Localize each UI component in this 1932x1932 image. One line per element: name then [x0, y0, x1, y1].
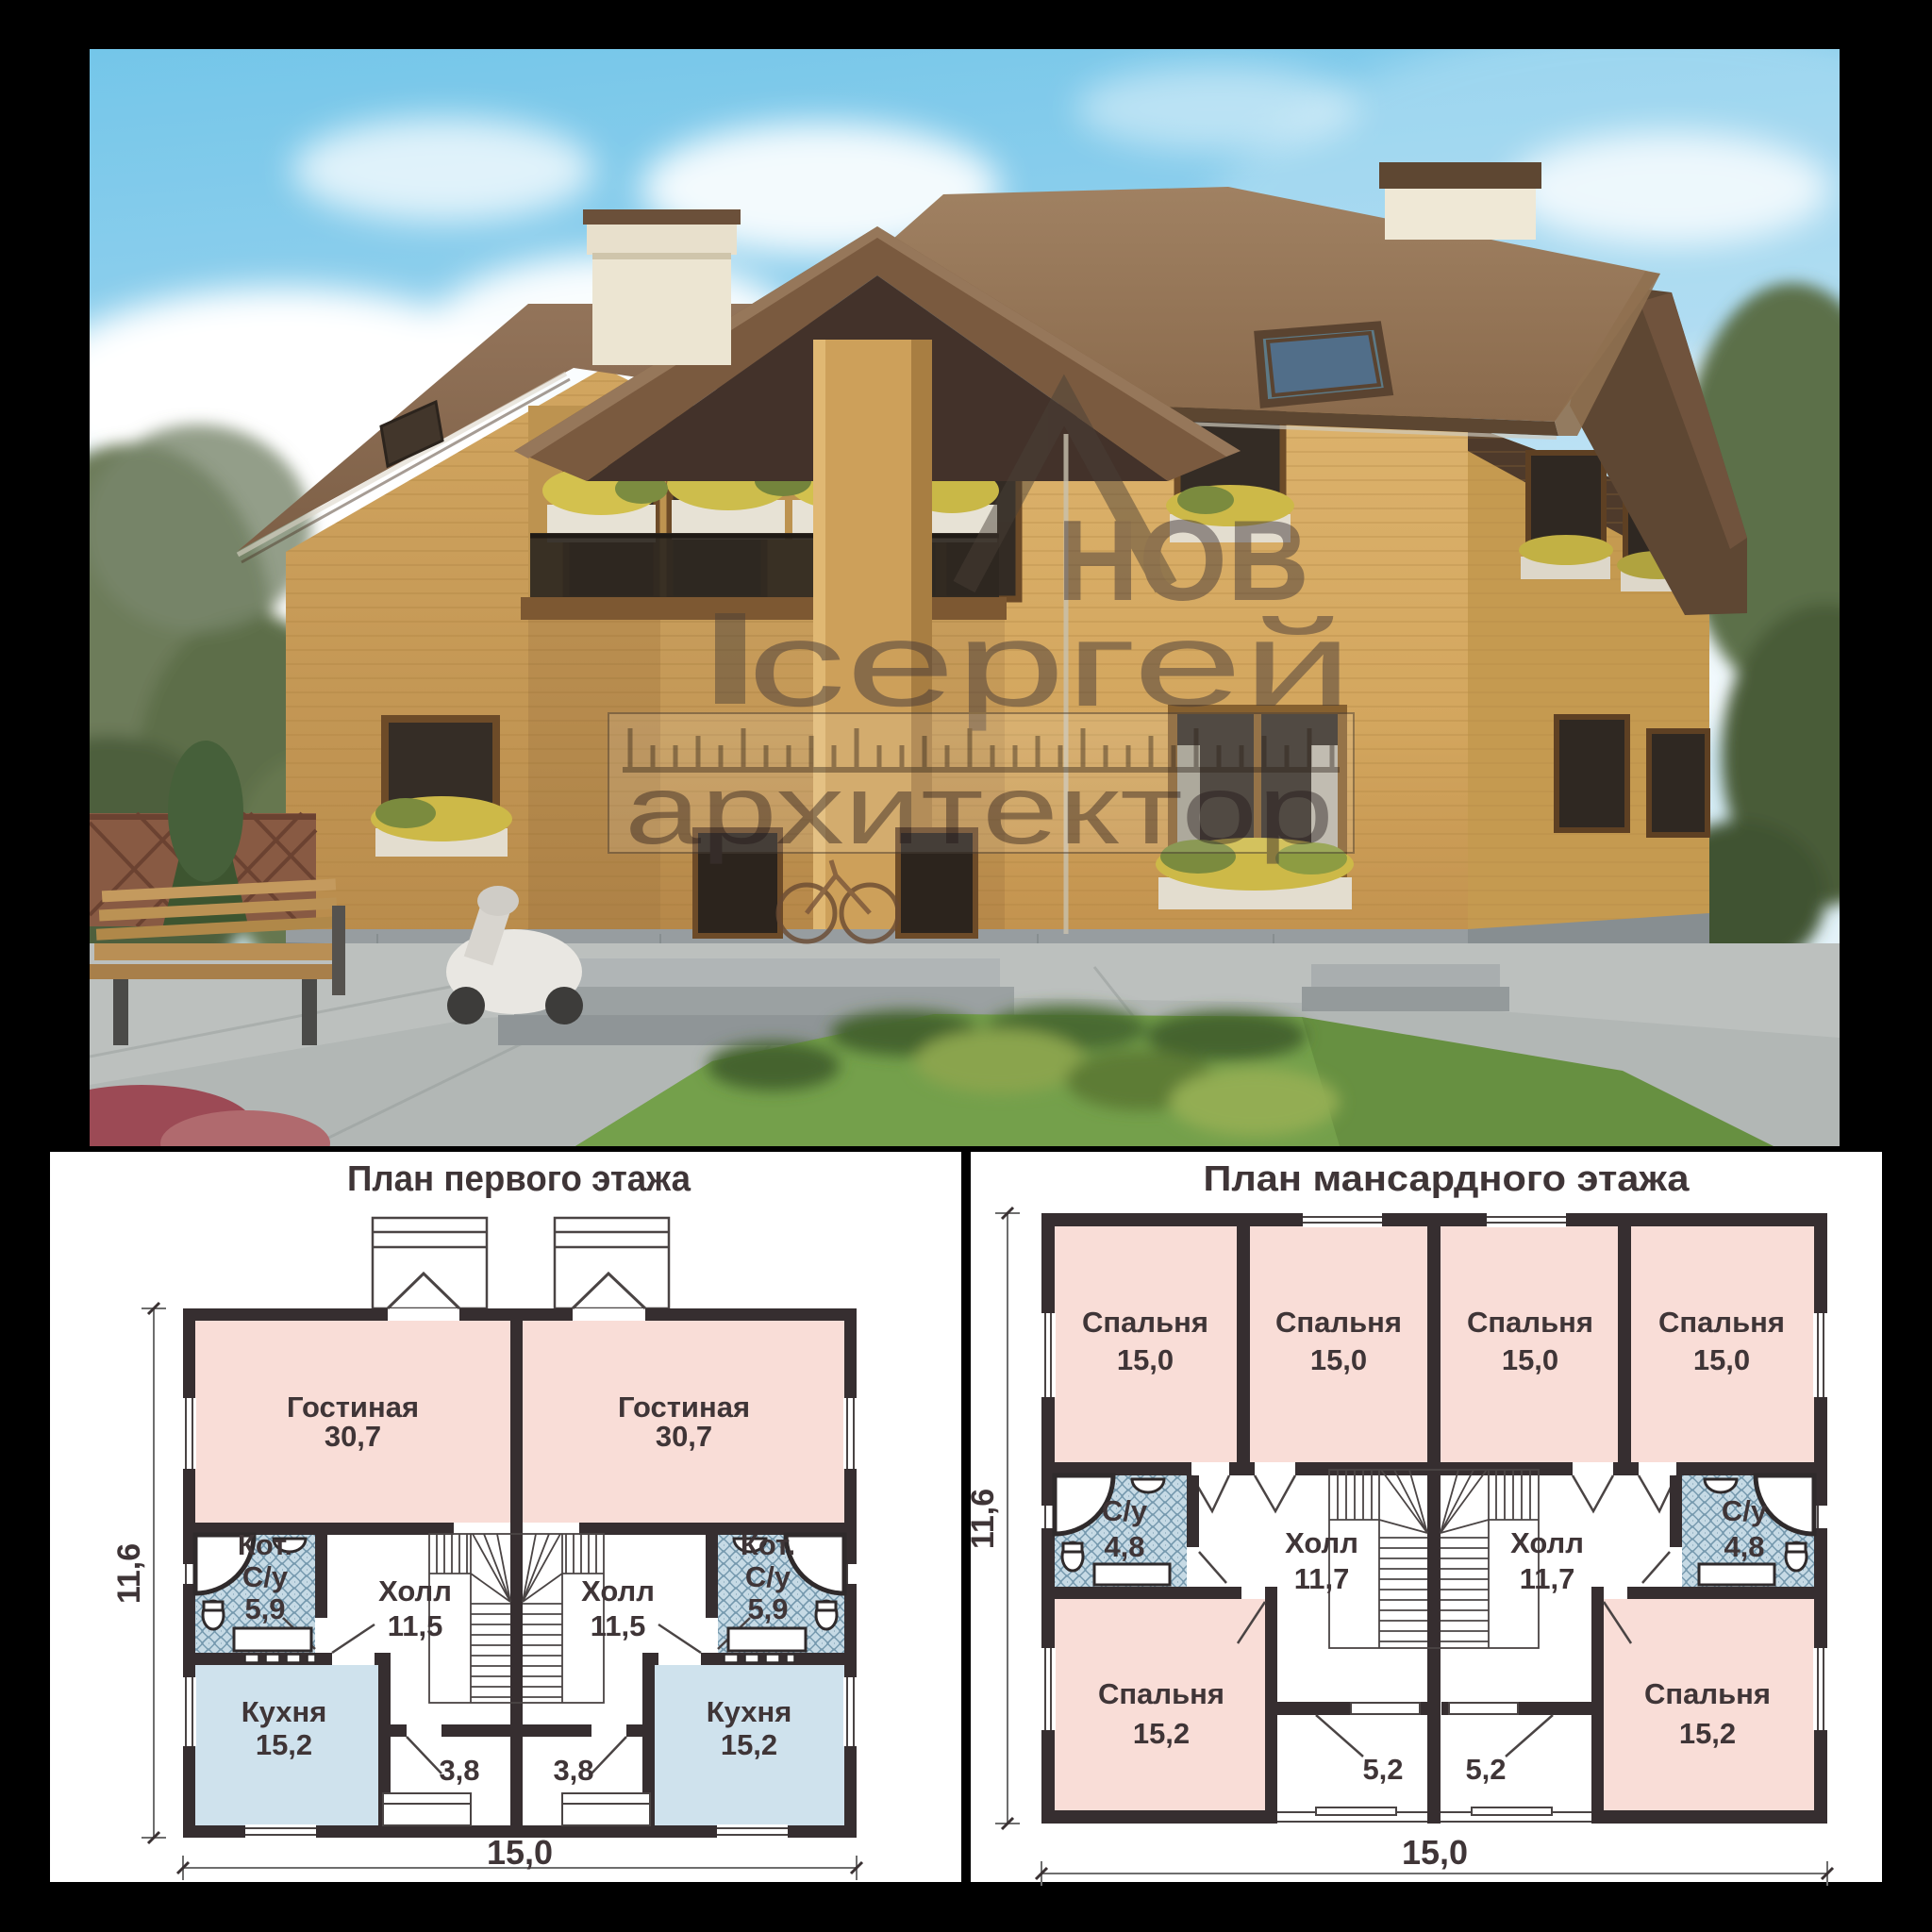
svg-text:15,0: 15,0: [1402, 1833, 1468, 1872]
svg-text:Спальня: Спальня: [1275, 1306, 1402, 1339]
svg-text:Холл: Холл: [1285, 1526, 1358, 1559]
svg-text:15,0: 15,0: [1117, 1343, 1174, 1376]
svg-text:15,0: 15,0: [1310, 1343, 1367, 1376]
svg-text:С/у: С/у: [1102, 1494, 1148, 1527]
svg-text:Гостиная: Гостиная: [287, 1391, 419, 1424]
svg-text:Спальня: Спальня: [1098, 1677, 1224, 1710]
svg-text:3,8: 3,8: [439, 1754, 479, 1787]
svg-text:11,5: 11,5: [591, 1609, 646, 1642]
svg-text:15,0: 15,0: [1693, 1343, 1750, 1376]
svg-text:Спальня: Спальня: [1658, 1306, 1785, 1339]
svg-text:15,0: 15,0: [487, 1833, 553, 1872]
svg-text:Кухня: Кухня: [241, 1695, 327, 1728]
svg-text:архитектор: архитектор: [625, 756, 1334, 865]
svg-text:Холл: Холл: [1510, 1526, 1584, 1559]
svg-text:4,8: 4,8: [1104, 1530, 1144, 1563]
svg-text:План первого этажа: План первого этажа: [347, 1159, 691, 1199]
svg-text:С/у: С/у: [242, 1560, 289, 1593]
svg-text:4,8: 4,8: [1724, 1530, 1764, 1563]
svg-text:Спальня: Спальня: [1644, 1677, 1771, 1710]
svg-text:5,2: 5,2: [1465, 1753, 1506, 1786]
svg-text:5,9: 5,9: [747, 1592, 788, 1625]
svg-text:Кот.: Кот.: [238, 1528, 292, 1561]
svg-text:3,8: 3,8: [553, 1754, 593, 1787]
svg-text:Холл: Холл: [378, 1574, 452, 1607]
svg-text:15,2: 15,2: [1679, 1717, 1736, 1750]
svg-text:11,6: 11,6: [965, 1489, 1001, 1549]
svg-text:С/у: С/у: [745, 1560, 791, 1593]
svg-text:5,2: 5,2: [1362, 1753, 1403, 1786]
svg-text:План мансардного этажа: План мансардного этажа: [1204, 1159, 1690, 1199]
svg-text:15,0: 15,0: [1502, 1343, 1558, 1376]
svg-text:С/у: С/у: [1722, 1494, 1768, 1527]
svg-text:30,7: 30,7: [325, 1420, 381, 1453]
svg-text:Кухня: Кухня: [707, 1695, 792, 1728]
svg-text:Спальня: Спальня: [1082, 1306, 1208, 1339]
svg-text:11,6: 11,6: [111, 1543, 147, 1604]
svg-text:11,7: 11,7: [1520, 1562, 1575, 1595]
svg-text:Кот.: Кот.: [741, 1528, 795, 1561]
svg-text:15,2: 15,2: [1133, 1717, 1190, 1750]
svg-text:Гостиная: Гостиная: [618, 1391, 750, 1424]
svg-text:15,2: 15,2: [721, 1728, 777, 1761]
svg-text:11,7: 11,7: [1294, 1562, 1350, 1595]
svg-text:15,2: 15,2: [256, 1728, 312, 1761]
svg-text:Спальня: Спальня: [1467, 1306, 1593, 1339]
svg-text:Холл: Холл: [581, 1574, 655, 1607]
svg-text:11,5: 11,5: [388, 1609, 443, 1642]
svg-text:30,7: 30,7: [656, 1420, 712, 1453]
svg-text:5,9: 5,9: [244, 1592, 285, 1625]
svg-text:сергей: сергей: [747, 597, 1353, 732]
